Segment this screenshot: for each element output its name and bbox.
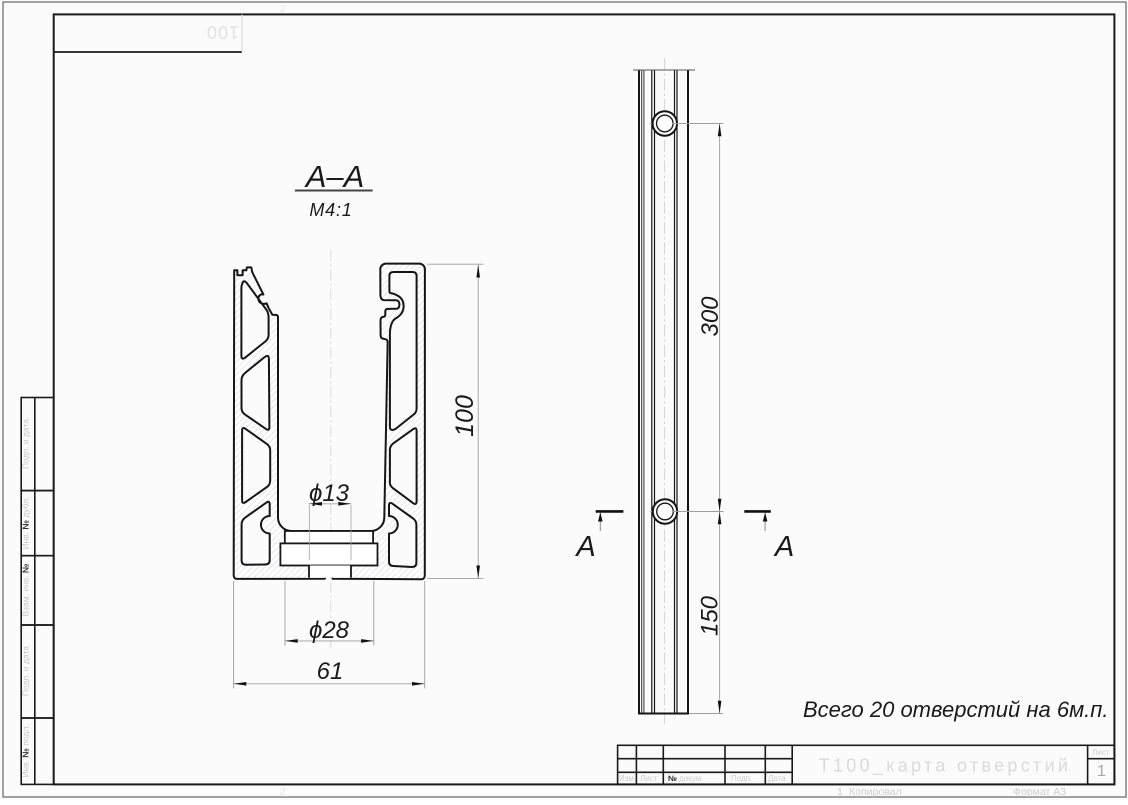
svg-text:100: 100 [451, 395, 479, 437]
svg-text:1: 1 [1097, 763, 1106, 780]
svg-text:ϕ13: ϕ13 [309, 480, 350, 507]
svg-text:61: 61 [317, 658, 344, 685]
svg-text:А: А [773, 531, 794, 563]
svg-text:Копировал: Копировал [849, 786, 902, 798]
svg-text:Подп. и дата: Подп. и дата [21, 646, 31, 696]
svg-text:Т100_карта отверстий: Т100_карта отверстий [819, 756, 1072, 777]
svg-text:А: А [574, 531, 595, 563]
svg-text:ϕ28: ϕ28 [309, 617, 350, 644]
svg-text:2: 2 [280, 4, 286, 15]
svg-text:150: 150 [697, 595, 724, 636]
svg-text:Лист: Лист [640, 774, 658, 783]
svg-text:Дата: Дата [768, 774, 786, 783]
svg-text:№ докум.: № докум. [668, 774, 703, 783]
svg-text:1: 1 [837, 786, 843, 798]
svg-text:М4:1: М4:1 [309, 200, 352, 220]
svg-text:Лист: Лист [1092, 748, 1110, 757]
svg-text:Взам. инв. №: Взам. инв. № [21, 563, 31, 617]
svg-text:2: 2 [280, 787, 286, 798]
svg-text:Формат А3: Формат А3 [1013, 786, 1066, 798]
svg-text:Всего 20 отверстий на 6м.п.: Всего 20 отверстий на 6м.п. [803, 697, 1109, 722]
svg-text:100: 100 [206, 22, 239, 42]
svg-text:Инв. № подл.: Инв. № подл. [21, 724, 31, 777]
svg-text:Инв. № дубл.: Инв. № дубл. [21, 496, 31, 549]
svg-text:Подп. и дата: Подп. и дата [21, 419, 31, 469]
svg-text:Изм.: Изм. [619, 774, 636, 783]
svg-text:Подп.: Подп. [731, 774, 752, 783]
svg-text:300: 300 [697, 296, 724, 337]
svg-text:А–А: А–А [304, 159, 365, 194]
